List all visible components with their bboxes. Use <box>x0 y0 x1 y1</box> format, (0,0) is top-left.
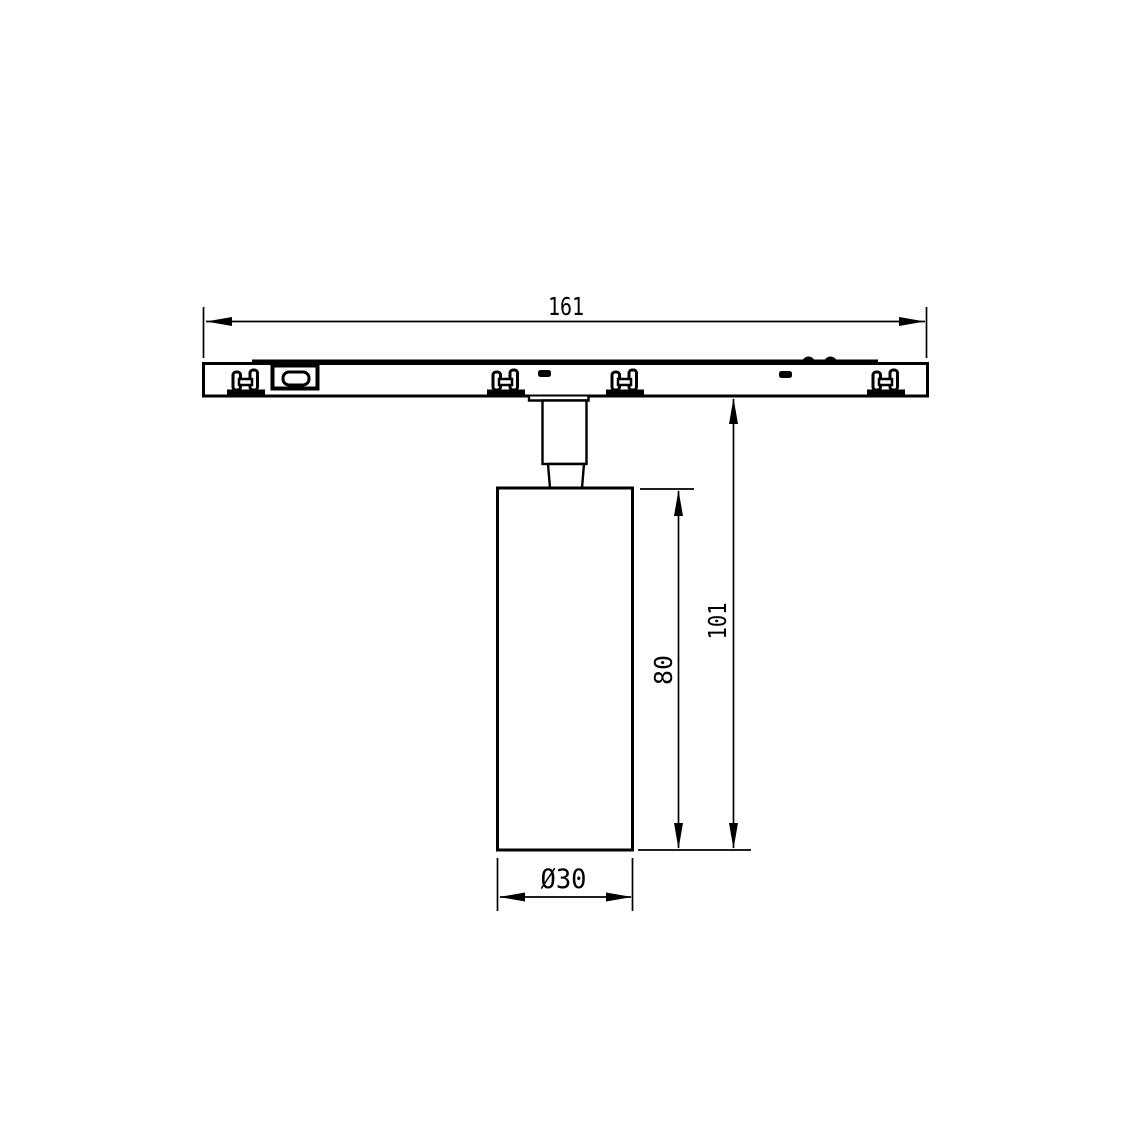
contact-tab-icon <box>779 371 792 378</box>
arrow-right-icon <box>899 317 925 326</box>
arrow-up-icon <box>674 490 683 516</box>
dimension-overall-height: 101 <box>638 398 751 850</box>
rail-bump-icon <box>824 357 837 363</box>
rail-bump-icon <box>802 357 815 363</box>
track-length-value: 161 <box>548 292 584 321</box>
arrow-down-icon <box>674 823 683 849</box>
body-height-value: 80 <box>649 655 678 685</box>
adapter-stem <box>529 397 589 489</box>
dimension-body-diameter: Ø30 <box>498 858 633 911</box>
cylinder-body <box>498 488 633 850</box>
arrow-up-icon <box>729 398 738 424</box>
stem-neck <box>548 464 584 488</box>
connector-inner <box>283 372 309 385</box>
technical-drawing-canvas: 161 80 <box>0 0 1140 1140</box>
body-diameter-value: Ø30 <box>541 864 587 895</box>
overall-height-value: 101 <box>703 603 732 640</box>
arrow-left-icon <box>499 893 525 902</box>
arrow-right-icon <box>606 893 632 902</box>
stem-body <box>543 401 587 465</box>
dimension-body-height: 80 <box>640 489 694 849</box>
contact-tab-icon <box>538 370 551 377</box>
track-rail <box>204 357 928 396</box>
arrow-left-icon <box>206 317 232 326</box>
arrow-down-icon <box>729 823 738 849</box>
dimension-track-length: 161 <box>204 292 927 358</box>
track-connector-block <box>273 366 318 389</box>
